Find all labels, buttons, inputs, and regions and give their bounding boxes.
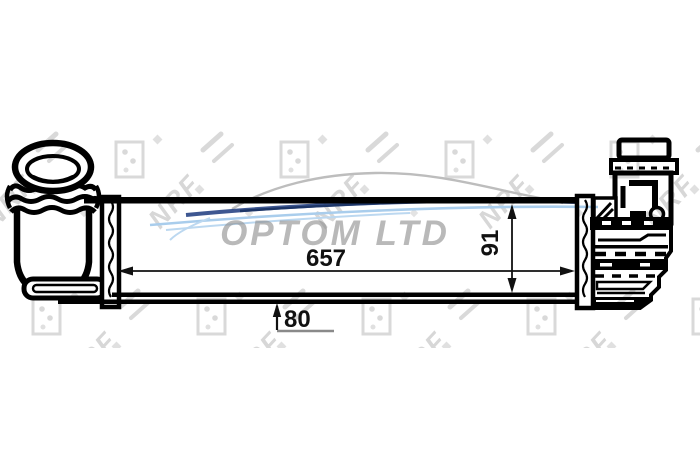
inlet-pipe-left: [7, 143, 106, 298]
dimension-depth-label: 80: [284, 306, 311, 333]
arrowhead-up-icon: [508, 204, 517, 219]
core-bottom-edge: [112, 293, 580, 298]
pipe-foot-bracket: [24, 279, 106, 298]
dimension-length: 657: [118, 245, 575, 276]
right-end-tank: [592, 219, 671, 308]
dimension-length-label: 657: [306, 245, 346, 272]
dimension-height-label: 91: [477, 230, 504, 257]
intercooler-technical-drawing: 657 91 80: [0, 0, 700, 460]
left-end-plate: [102, 197, 119, 307]
core-lower-edge: [58, 300, 588, 305]
arrowhead-right-icon: [560, 267, 575, 276]
arrowhead-up-icon: [273, 303, 281, 317]
arrowhead-down-icon: [508, 278, 517, 293]
right-end-plate: [577, 196, 593, 308]
part-diagram-canvas: 657 91 80: [0, 0, 700, 460]
dimension-depth: 80: [273, 303, 334, 333]
outlet-port-top-right: [590, 140, 677, 230]
dimension-height: 91: [477, 204, 517, 293]
core-top-edge: [112, 197, 580, 204]
